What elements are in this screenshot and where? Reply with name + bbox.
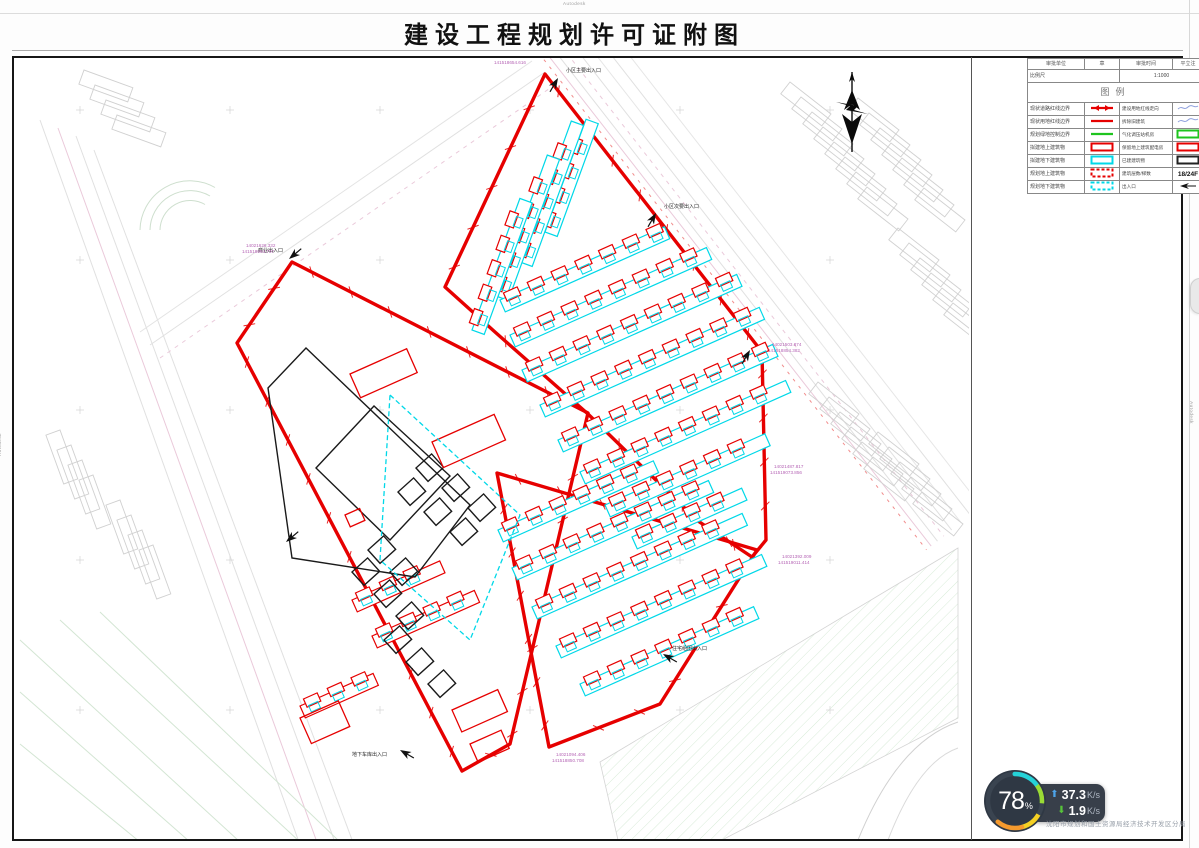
page-title: 建设工程规划许可证附图 xyxy=(404,15,745,50)
legend-symbol-cyan-rect xyxy=(1090,155,1114,165)
legend-symbol-cell xyxy=(1085,103,1120,116)
legend-label: 已建建筑物 xyxy=(1120,155,1173,168)
legend-symbol-cell xyxy=(1173,103,1199,116)
legend-symbol-cell xyxy=(1173,181,1199,194)
legend-label: 气化调压站机房 xyxy=(1120,129,1173,142)
legend-row: 拟建地下建筑物已建建筑物 xyxy=(1028,155,1199,168)
edge-dock-handle[interactable] xyxy=(1190,278,1199,314)
svg-text:141519011.414: 141519011.414 xyxy=(778,560,810,565)
legend-symbol-cell xyxy=(1173,142,1199,155)
sheet-margin-divider xyxy=(971,57,972,840)
legend-header-cell: 审批单位 xyxy=(1028,59,1085,70)
bureau-caption: 沈阳市规划和国土资源局经济技术开发区分局 xyxy=(1046,818,1186,828)
download-speed-unit: K/s xyxy=(1087,806,1100,816)
legend-symbol-cell xyxy=(1085,129,1120,142)
legend-symbol-cell xyxy=(1173,116,1199,129)
legend-label: 规划地下建筑物 xyxy=(1028,181,1085,194)
autodesk-watermark-top: Autodesk xyxy=(563,1,586,6)
legend-label: 出入口 xyxy=(1120,181,1173,194)
entrance-label: 小区次要出入口 xyxy=(664,203,699,210)
entrance-label: 住宅组团出入口 xyxy=(672,645,707,652)
upload-speed-unit: K/s xyxy=(1087,790,1100,800)
svg-text:14021392.009: 14021392.009 xyxy=(782,554,812,559)
legend-row: 拟建地上建筑物保留地上建筑配电房 xyxy=(1028,142,1199,155)
svg-text:141519073.856: 141519073.856 xyxy=(770,470,802,475)
download-speed-value: 1.9 xyxy=(1069,804,1086,818)
legend-symbol-red-dash-rect xyxy=(1090,168,1114,178)
legend-header-cell: 章 xyxy=(1085,59,1120,70)
legend-symbol-sig xyxy=(1176,116,1199,126)
progress-percent: 78% xyxy=(982,768,1048,834)
legend-row: 规划地下建筑物出入口 xyxy=(1028,181,1199,194)
legend-symbol-entr-arrow xyxy=(1176,181,1199,191)
building-rows xyxy=(298,118,791,718)
legend-row: 现状用地红线边界拆除旧建筑 xyxy=(1028,116,1199,129)
legend-table: 审批单位章审批时间平立注比例尺1:1000图例现状道路红线边界建设用地红线走向现… xyxy=(1027,58,1199,194)
autodesk-watermark-right: Autodesk xyxy=(1189,401,1194,424)
svg-text:14021626.332: 14021626.332 xyxy=(246,243,276,248)
site-plan-canvas[interactable]: 小区主要出入口小区次要出入口住宅组团出入口商业出入口地下车库出入口1402162… xyxy=(14,58,969,839)
legend-symbol-cell: 18/24F xyxy=(1173,168,1199,181)
legend-symbol-green-line xyxy=(1090,129,1114,139)
legend-header-cell: 审批时间 xyxy=(1120,59,1173,70)
legend-symbol-cell xyxy=(1173,155,1199,168)
svg-text:18/24F: 18/24F xyxy=(1178,171,1198,178)
legend-symbol-cell xyxy=(1085,168,1120,181)
legend-label: 建设用地红线走向 xyxy=(1120,103,1173,116)
legend-row: 规划绿地控制边界气化调压站机房 xyxy=(1028,129,1199,142)
legend-symbol-cell xyxy=(1173,129,1199,142)
scale-label: 比例尺 xyxy=(1028,70,1120,83)
entrance-label: 地下车库出入口 xyxy=(352,751,387,758)
legend-label: 规划绿地控制边界 xyxy=(1028,129,1085,142)
frame-inner-rule xyxy=(12,50,1183,51)
legend-symbol-sig xyxy=(1176,103,1199,113)
app-window: Autodesk Autodesk Autodesk 建设工程规划许可证附图 小… xyxy=(0,0,1199,848)
svg-text:14021503.874: 14021503.874 xyxy=(772,342,802,347)
legend-symbol-red-rect xyxy=(1176,142,1199,152)
autodesk-watermark-left: Autodesk xyxy=(0,433,2,456)
svg-text:141518654.616: 141518654.616 xyxy=(494,60,526,65)
upload-arrow-icon: ⬆ xyxy=(1050,790,1058,800)
entrance-label: 小区主要出入口 xyxy=(566,67,601,74)
legend-symbol-black-rect xyxy=(1176,155,1199,165)
legend-label: 拟建地上建筑物 xyxy=(1028,142,1085,155)
legend-title: 图例 xyxy=(1028,83,1199,103)
legend-symbol-red-double-arrow xyxy=(1090,103,1114,113)
scale-value: 1:1000 xyxy=(1120,70,1199,83)
context-linework xyxy=(20,58,969,839)
legend-label: 现状用地红线边界 xyxy=(1028,116,1085,129)
legend-header-cell: 平立注 xyxy=(1173,59,1199,70)
legend-row: 规划地上建筑物建筑层数/梯数18/24F xyxy=(1028,168,1199,181)
legend-symbol-cell xyxy=(1085,181,1120,194)
legend-symbol-green-rect xyxy=(1176,129,1199,139)
upload-speed-value: 37.3 xyxy=(1062,788,1086,802)
svg-text:141518850.708: 141518850.708 xyxy=(552,758,584,763)
top-rule xyxy=(0,13,1199,14)
legend-symbol-red-rect xyxy=(1090,142,1114,152)
legend-symbol-cell xyxy=(1085,155,1120,168)
svg-text:141518694.737: 141518694.737 xyxy=(242,249,274,254)
svg-text:141518854.382: 141518854.382 xyxy=(768,348,800,353)
download-arrow-icon: ⬇ xyxy=(1057,806,1065,816)
legend-label: 规划地上建筑物 xyxy=(1028,168,1085,181)
svg-text:14021094.406: 14021094.406 xyxy=(556,752,586,757)
legend-symbol-red-line xyxy=(1090,116,1114,126)
progress-ring[interactable]: 78% xyxy=(982,768,1048,834)
legend-symbol-cell xyxy=(1085,142,1120,155)
svg-text:14021808.717: 14021808.717 xyxy=(498,58,528,59)
legend-symbol-cell xyxy=(1085,116,1120,129)
legend-label: 保留地上建筑配电房 xyxy=(1120,142,1173,155)
legend-label: 现状道路红线边界 xyxy=(1028,103,1085,116)
svg-text:14021487.817: 14021487.817 xyxy=(774,464,804,469)
legend-label: 拆除旧建筑 xyxy=(1120,116,1173,129)
legend-symbol-floors: 18/24F xyxy=(1176,168,1199,178)
legend-label: 拟建地下建筑物 xyxy=(1028,155,1085,168)
north-arrow-compass xyxy=(836,72,868,152)
legend-symbol-cyan-dash-rect xyxy=(1090,181,1114,191)
entrance-markers: 小区主要出入口小区次要出入口住宅组团出入口商业出入口地下车库出入口 xyxy=(258,67,753,761)
legend-label: 建筑层数/梯数 xyxy=(1120,168,1173,181)
legend-row: 现状道路红线边界建设用地红线走向 xyxy=(1028,103,1199,116)
